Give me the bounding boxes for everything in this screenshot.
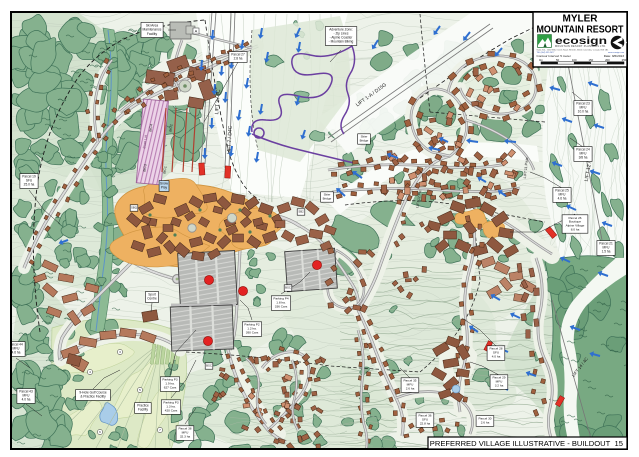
- svg-text:22.8 ha: 22.8 ha: [420, 422, 431, 426]
- svg-text:SB2: SB2: [298, 210, 304, 214]
- svg-text:Centre: Centre: [147, 297, 157, 301]
- svg-text:0m: 0m: [539, 58, 544, 62]
- svg-text:MOUNTAIN RESORT PLANNERS LTD.: MOUNTAIN RESORT PLANNERS LTD.: [555, 45, 606, 48]
- svg-text:50: 50: [556, 58, 560, 62]
- svg-text:4.0 ha: 4.0 ha: [492, 355, 501, 359]
- svg-text:PREFERRED VILLAGE ILLUSTRATIVE: PREFERRED VILLAGE ILLUSTRATIVE - BUILDOU…: [430, 439, 611, 448]
- svg-text:150: 150: [588, 58, 593, 62]
- svg-text:Bridge: Bridge: [323, 197, 332, 201]
- svg-text:Bridge: Bridge: [360, 139, 369, 143]
- svg-text:1.5 ha: 1.5 ha: [602, 250, 611, 254]
- svg-text:250: 250: [622, 58, 627, 62]
- svg-text:420 Cars: 420 Cars: [165, 409, 178, 413]
- svg-text:15: 15: [615, 439, 623, 448]
- svg-text:200: 200: [605, 58, 610, 62]
- svg-text:4.6 ha: 4.6 ha: [12, 351, 21, 355]
- svg-text:627 Cars: 627 Cars: [164, 386, 177, 390]
- svg-text:32.3 ha: 32.3 ha: [180, 435, 191, 439]
- svg-text:Play: Play: [161, 186, 168, 190]
- svg-text:& Practice Facility: & Practice Facility: [80, 395, 106, 399]
- svg-text:2.8 ha: 2.8 ha: [234, 57, 243, 61]
- svg-text:Facility: Facility: [147, 32, 158, 36]
- svg-text:4.0 ha: 4.0 ha: [22, 398, 31, 402]
- svg-text:25.0 ha: 25.0 ha: [24, 183, 35, 187]
- svg-text:10.0 ha: 10.0 ha: [578, 110, 589, 114]
- svg-text:336 Cars: 336 Cars: [275, 305, 288, 309]
- svg-text:4.6 ha: 4.6 ha: [558, 197, 567, 201]
- svg-text:2.6 ha: 2.6 ha: [406, 387, 415, 391]
- svg-text:MOUNTAIN RESORT: MOUNTAIN RESORT: [537, 24, 624, 36]
- svg-text:8.0 ha: 8.0 ha: [571, 228, 580, 232]
- svg-text:A: A: [195, 29, 198, 34]
- svg-text:BSC: BSC: [285, 286, 291, 290]
- svg-text:390 Cars: 390 Cars: [246, 331, 259, 335]
- svg-text:BSC: BSC: [206, 364, 212, 368]
- svg-text:SBQ: SBQ: [131, 206, 138, 210]
- svg-text:100: 100: [572, 58, 577, 62]
- svg-text:- Mountain Biking: - Mountain Biking: [329, 40, 354, 44]
- svg-text:3.2 ha: 3.2 ha: [495, 384, 504, 388]
- svg-text:3/8 ha: 3/8 ha: [579, 156, 588, 160]
- svg-text:Facility: Facility: [138, 408, 148, 412]
- svg-text:2.6 ha: 2.6 ha: [481, 421, 490, 425]
